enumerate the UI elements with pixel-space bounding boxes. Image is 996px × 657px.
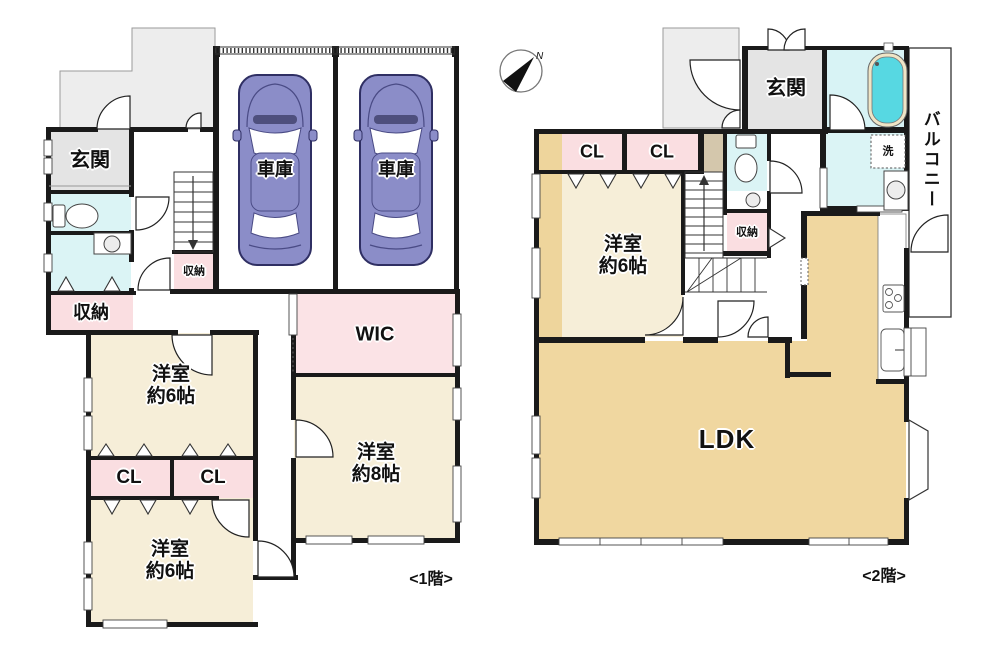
floor1-toilet-icon [53,204,98,228]
floor2-plan [532,28,951,545]
floor2-entrance-label: 玄関 [766,78,806,101]
floor1-storage-label: 収納 [73,303,109,324]
floor2-bedroom6-label: 洋室 約6帖 [599,234,648,278]
floor1-closet-left-label: CL [116,467,141,489]
floor1-entrance-label: 玄関 [70,150,110,173]
floor1-plan [44,28,461,628]
floor1-stairs [174,172,213,252]
floor1-stair-storage-label: 収納 [183,266,205,279]
room-size: 約6帖 [147,386,196,408]
hand-basin-icon [746,193,760,207]
compass-north-label: N [536,51,544,62]
garage-right-label: 車庫 [378,160,414,181]
floor1-porch [60,28,215,129]
room-size: 約6帖 [599,256,648,278]
stove-icon [883,285,904,312]
room-name: 洋室 [352,442,401,464]
floor2-storage-label: 収納 [736,227,758,240]
floor1-bedroom8-label: 洋室 約8帖 [352,442,401,486]
floor2-sink-icon [884,171,908,210]
room-name: 洋室 [146,539,195,561]
ldk-label: LDK [699,425,755,455]
floor1-closet-right-label: CL [200,467,225,489]
room-size: 約6帖 [146,561,195,583]
floorplan-page: N 玄関 収納 収納 車庫 車庫 WIC 洋室 約8帖 洋室 約6帖 CL CL… [0,0,996,657]
room-name: 洋室 [599,234,648,256]
room-size: 約8帖 [352,464,401,486]
floor2-closet-right-label: CL [650,142,674,163]
floor2-bedroom-side-strip [539,133,562,339]
floor2-shaft [703,133,723,172]
wall-vent [801,258,808,285]
floor1-wic-label: WIC [356,324,395,347]
balcony-label: バルコニー [920,110,940,210]
floor1-caption: <1階> [409,565,453,589]
floor2-toilet-icon [735,135,757,182]
bay-window [909,420,928,500]
floor2-caption: <2階> [862,562,906,586]
floor2-closet-left-label: CL [580,142,604,163]
room-name: 洋室 [147,364,196,386]
laundry-label: 洗 [883,146,894,159]
garage-left-label: 車庫 [257,160,293,181]
floor1-bedroom6-lower-label: 洋室 約6帖 [146,539,195,583]
floor1-bedroom6-upper-label: 洋室 約6帖 [147,364,196,408]
compass: N [500,50,544,92]
kitchen-sink-icon [881,329,904,371]
floor1-sink-icon [94,233,131,254]
stairs-up-arrow [699,175,709,185]
stairs-down-arrow [188,240,198,250]
